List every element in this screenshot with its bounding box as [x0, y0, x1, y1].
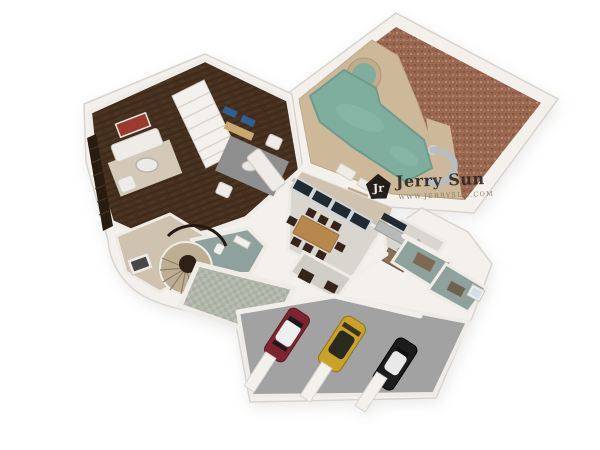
- floorplan-render: Jr Jerry Sun WWW.JERRYSUN.COM: [0, 0, 600, 450]
- watermark: Jr Jerry Sun WWW.JERRYSUN.COM: [366, 170, 495, 202]
- watermark-brand: Jerry Sun: [396, 170, 494, 191]
- jerry-sun-logo-icon: Jr: [366, 173, 392, 199]
- watermark-text: Jerry Sun WWW.JERRYSUN.COM: [396, 170, 495, 201]
- logo-monogram: Jr: [373, 183, 384, 194]
- floorplan-canvas: [0, 0, 600, 450]
- coffee-table-round: [136, 158, 158, 172]
